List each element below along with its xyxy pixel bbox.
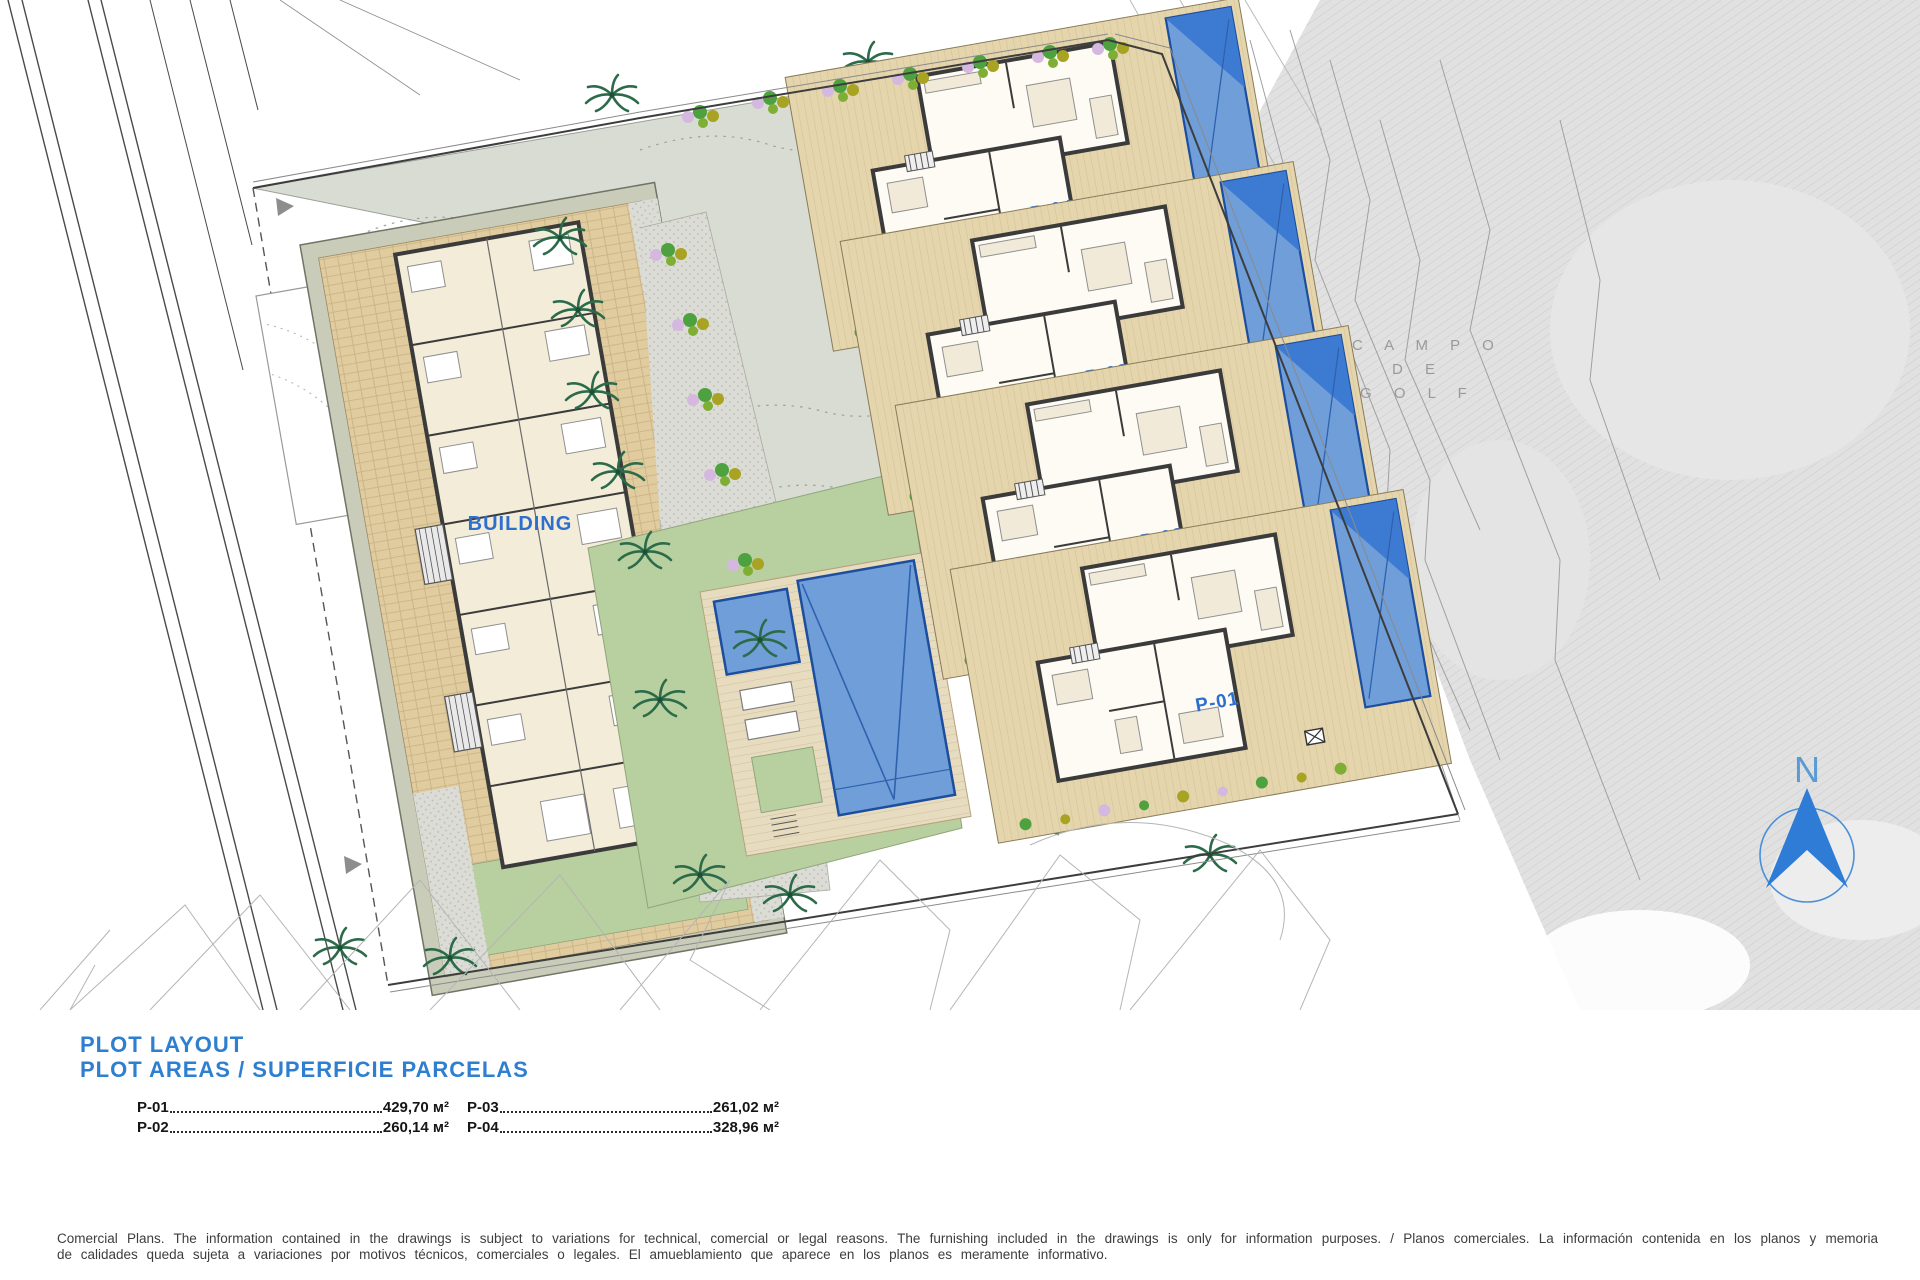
disclaimer-text: Comercial Plans. The information contain… [57,1231,1878,1264]
legend-title: PLOT LAYOUT [80,1032,797,1057]
page: C A M P O D E G O L F [0,0,1920,1280]
dotted-leader [500,1131,712,1133]
area-label: P-01 [137,1099,169,1116]
dotted-leader [170,1131,382,1133]
svg-text:C A M P O: C A M P O [1352,337,1503,354]
site-plan-svg: C A M P O D E G O L F [0,0,1920,1010]
area-row-p02: P-02 260,14 м² [137,1119,449,1136]
area-label: P-03 [467,1099,499,1116]
area-value: 260,14 м² [383,1119,449,1136]
plot-areas-list: P-01 429,70 м² P-03 261,02 м² P-02 260,1… [137,1099,797,1136]
area-value: 261,02 м² [713,1099,779,1116]
small-pool [714,589,800,675]
legend: PLOT LAYOUT PLOT AREAS / SUPERFICIE PARC… [80,1032,797,1136]
svg-text:G O L F: G O L F [1360,385,1476,402]
dotted-leader [500,1111,712,1113]
north-label: N [1794,749,1820,790]
area-value: 328,96 м² [713,1119,779,1136]
planter [752,747,823,813]
area-row-p01: P-01 429,70 м² [137,1099,449,1116]
area-label: P-04 [467,1119,499,1136]
building-label: BUILDING [468,513,573,535]
area-row-p04: P-04 328,96 м² [467,1119,779,1136]
site-plan: C A M P O D E G O L F [0,0,1920,1010]
area-label: P-02 [137,1119,169,1136]
svg-text:D E: D E [1392,361,1444,378]
area-row-p03: P-03 261,02 м² [467,1099,779,1116]
legend-subtitle: PLOT AREAS / SUPERFICIE PARCELAS [80,1057,797,1082]
area-value: 429,70 м² [383,1099,449,1116]
dotted-leader [170,1111,382,1113]
